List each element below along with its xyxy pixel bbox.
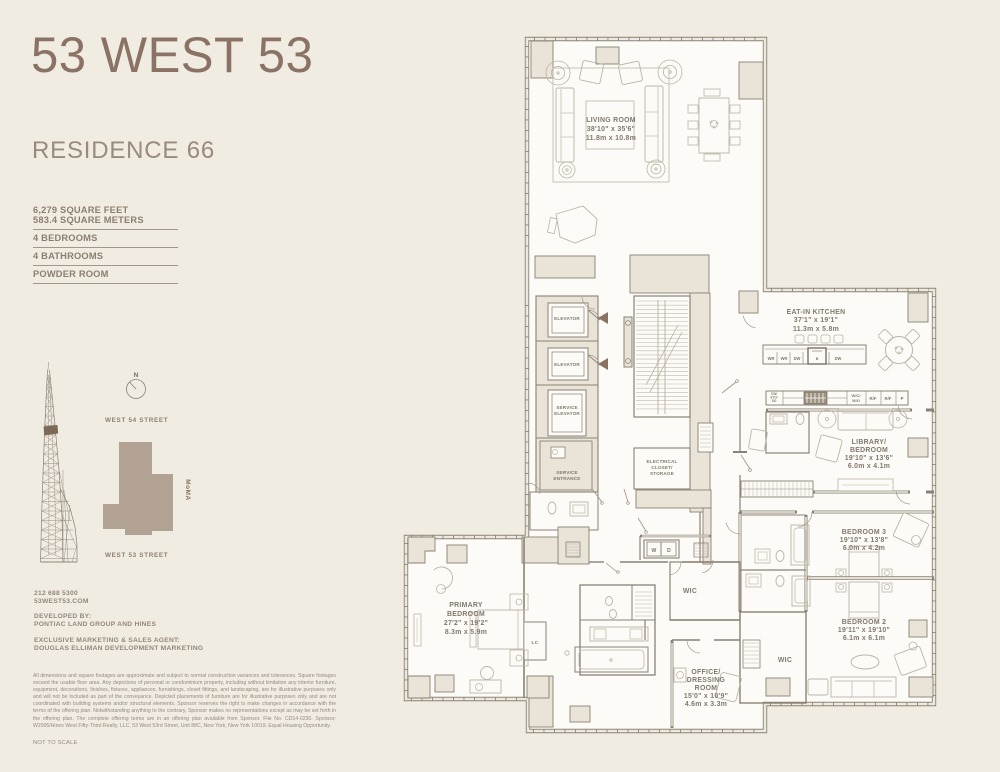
svg-text:WR: WR bbox=[781, 356, 788, 361]
svg-text:BEDROOM 2: BEDROOM 2 bbox=[842, 619, 886, 626]
svg-text:DW: DW bbox=[835, 356, 842, 361]
svg-text:19'10" x 13'8": 19'10" x 13'8" bbox=[840, 537, 889, 544]
svg-text:ELEVATOR: ELEVATOR bbox=[554, 411, 580, 416]
svg-text:6.0m x 4.1m: 6.0m x 4.1m bbox=[848, 463, 890, 470]
svg-text:LIBRARY/: LIBRARY/ bbox=[852, 439, 887, 446]
svg-text:11.3m x 5.8m: 11.3m x 5.8m bbox=[793, 326, 839, 333]
svg-text:SERVICE: SERVICE bbox=[556, 405, 577, 410]
svg-text:BEDROOM: BEDROOM bbox=[447, 611, 485, 618]
svg-text:OFFICE/: OFFICE/ bbox=[691, 669, 720, 676]
svg-text:W: W bbox=[651, 548, 656, 554]
svg-text:19'11" x 19'10": 19'11" x 19'10" bbox=[838, 627, 890, 634]
svg-text:4.6m x 3.3m: 4.6m x 3.3m bbox=[685, 701, 727, 708]
svg-text:WIC: WIC bbox=[683, 588, 697, 595]
svg-text:EAT-IN KITCHEN: EAT-IN KITCHEN bbox=[787, 309, 846, 316]
svg-text:ELEVATOR: ELEVATOR bbox=[554, 362, 580, 367]
svg-text:LIVING ROOM: LIVING ROOM bbox=[586, 117, 636, 124]
svg-text:PRIMARY: PRIMARY bbox=[449, 602, 483, 609]
svg-text:STORAGE: STORAGE bbox=[650, 471, 674, 476]
svg-text:SERVICE: SERVICE bbox=[556, 470, 577, 475]
svg-text:BEDROOM 3: BEDROOM 3 bbox=[842, 529, 886, 536]
svg-text:LC: LC bbox=[532, 640, 539, 646]
svg-text:ROOM: ROOM bbox=[695, 685, 718, 692]
svg-text:SO: SO bbox=[772, 399, 777, 403]
svg-text:6.0m x 4.2m: 6.0m x 4.2m bbox=[843, 545, 885, 552]
svg-text:WIC: WIC bbox=[778, 657, 792, 664]
svg-text:27'2" x 19'2": 27'2" x 19'2" bbox=[444, 620, 488, 627]
svg-text:DRESSING: DRESSING bbox=[687, 677, 725, 684]
svg-text:38'10" x 35'6": 38'10" x 35'6" bbox=[587, 126, 636, 133]
svg-text:P: P bbox=[901, 396, 904, 401]
svg-text:R/F: R/F bbox=[885, 396, 892, 401]
svg-text:R/F: R/F bbox=[870, 396, 877, 401]
svg-text:DW: DW bbox=[794, 356, 801, 361]
svg-text:N: N bbox=[134, 372, 139, 379]
svg-text:11.8m x 10.8m: 11.8m x 10.8m bbox=[586, 135, 636, 142]
svg-text:37'1" x 19'1": 37'1" x 19'1" bbox=[794, 317, 838, 324]
svg-text:WR: WR bbox=[768, 356, 775, 361]
svg-text:19'10" x 13'6": 19'10" x 13'6" bbox=[845, 455, 894, 462]
svg-text:CLOSET/: CLOSET/ bbox=[651, 465, 673, 470]
svg-text:D: D bbox=[667, 548, 671, 554]
svg-text:ELECTRICAL: ELECTRICAL bbox=[646, 459, 677, 464]
svg-text:ENTRANCE: ENTRANCE bbox=[553, 476, 580, 481]
svg-text:8.3m x 5.9m: 8.3m x 5.9m bbox=[445, 629, 487, 636]
svg-text:MoMA: MoMA bbox=[184, 479, 191, 501]
svg-text:BEDROOM: BEDROOM bbox=[850, 447, 888, 454]
svg-text:W/O: W/O bbox=[852, 398, 860, 403]
svg-text:6.1m x 6.1m: 6.1m x 6.1m bbox=[843, 635, 885, 642]
svg-text:B: B bbox=[816, 357, 819, 361]
svg-text:15'0" x 10'9": 15'0" x 10'9" bbox=[684, 693, 728, 700]
svg-text:ELEVATOR: ELEVATOR bbox=[554, 316, 580, 321]
